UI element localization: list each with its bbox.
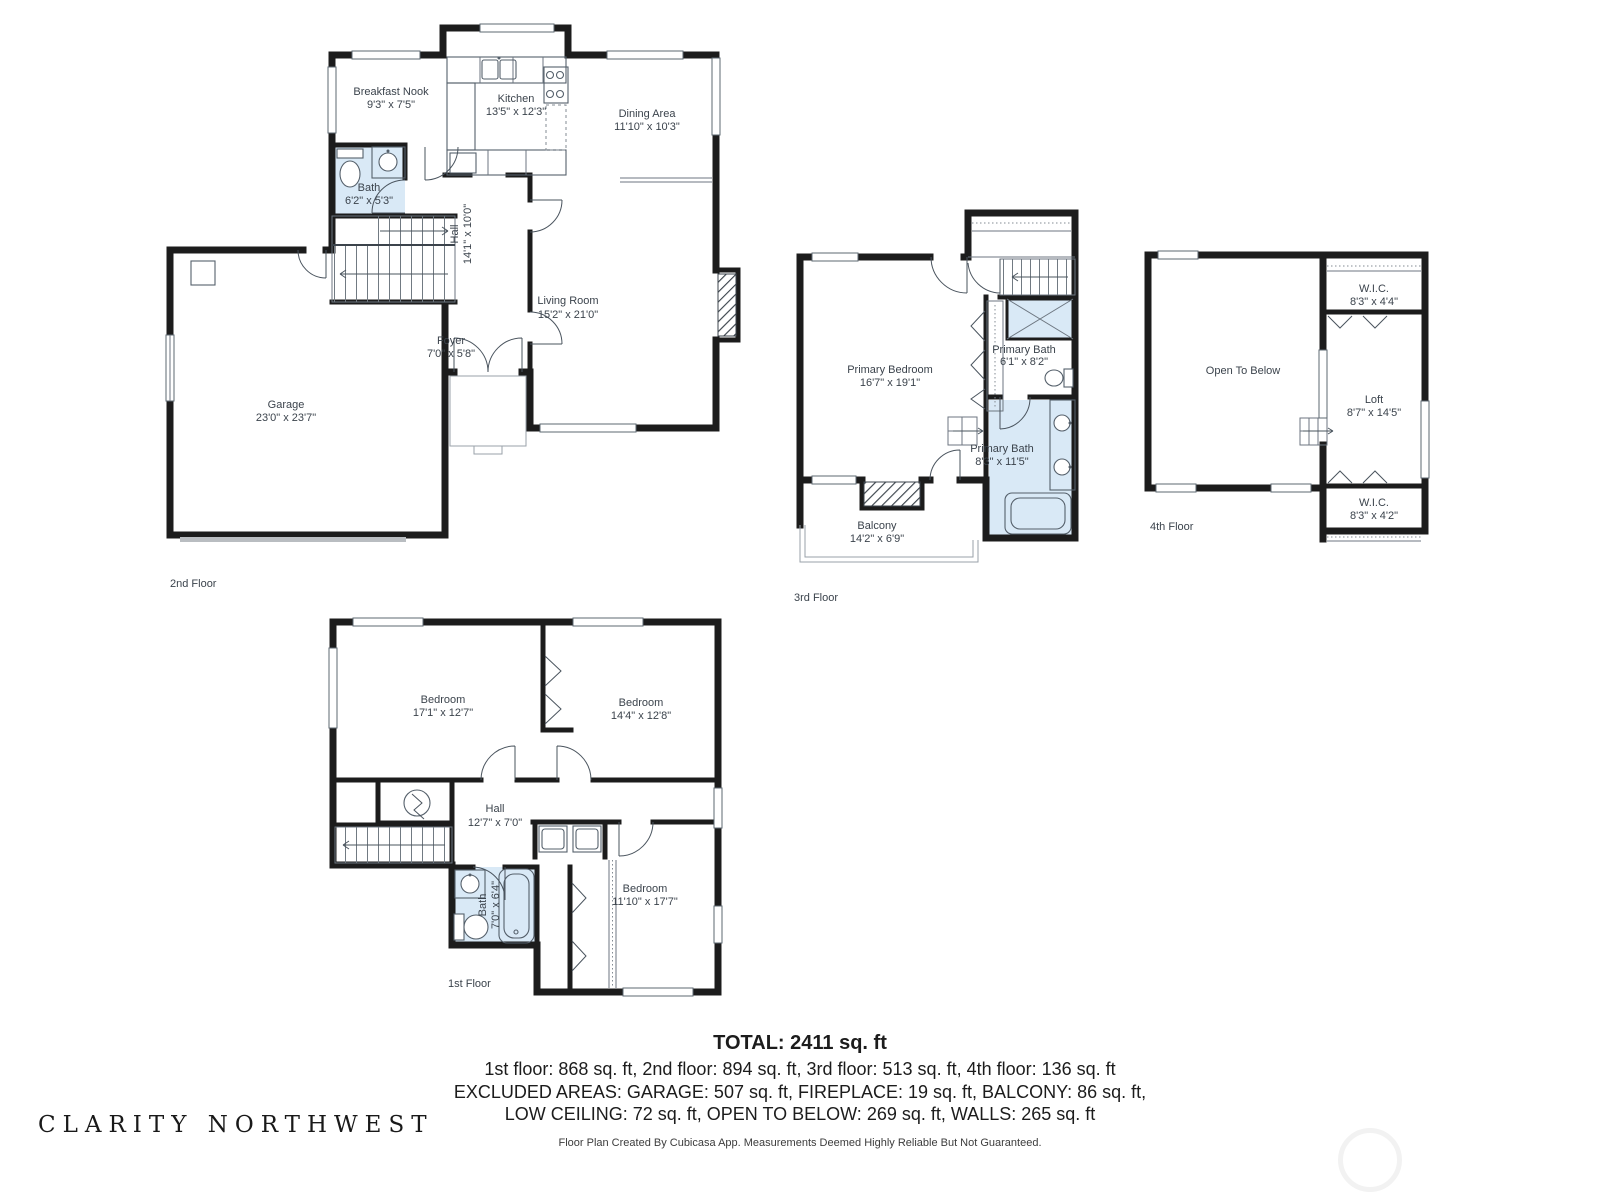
room-dims: 8'3" x 4'2" [1350, 510, 1398, 522]
fireplace [862, 480, 922, 508]
room-name: W.I.C. [1359, 497, 1389, 509]
room-name: Bath [358, 182, 381, 194]
floor-label: 3rd Floor [794, 592, 838, 604]
excluded-areas-line-1: EXCLUDED AREAS: GARAGE: 507 sq. ft, FIRE… [0, 1081, 1600, 1104]
stairs [1300, 418, 1333, 445]
stairs [332, 216, 455, 302]
fireplace [716, 270, 738, 340]
room-name: Foyer [437, 335, 465, 347]
room-name: Living Room [537, 295, 598, 307]
winder-stairs [948, 417, 983, 445]
room-dims: 6'2" x 5'3" [345, 195, 393, 207]
toilet-icon [1045, 369, 1073, 387]
room-name: Open To Below [1206, 365, 1280, 377]
water-heater [191, 261, 215, 285]
brand-logo: CLARITY NORTHWEST [38, 1112, 434, 1138]
room-dims: 14'2" x 6'9" [850, 533, 904, 545]
floor-plan-4th-floor: Open To Below W.I.C. 8'3" x 4'4" Loft 8'… [1123, 243, 1435, 553]
room-name: Dining Area [619, 108, 677, 120]
room-dims: 17'1" x 12'7" [413, 707, 473, 719]
garage-door [180, 537, 406, 542]
wardrobe-track [609, 860, 616, 988]
room-dims: 13'5" x 12'3" [486, 106, 546, 118]
room-name: Balcony [857, 520, 897, 532]
room-dims: 14'4" x 12'8" [611, 710, 671, 722]
room-dims: 16'7" x 19'1" [860, 377, 920, 389]
stove-icon [544, 67, 568, 150]
room-name: Bath [477, 894, 489, 917]
closet-chevrons [545, 656, 586, 971]
room-dims: 14'1" x 10'0" [462, 204, 474, 264]
room-dims: 9'3" x 7'5" [367, 99, 415, 111]
low-ceiling-strip [972, 223, 1071, 231]
floor-label: 2nd Floor [170, 578, 217, 590]
room-dims: 8'3" x 11'5" [975, 456, 1028, 468]
room-dims: 11'10" x 10'3" [614, 121, 680, 133]
stairs [335, 827, 452, 863]
room-name: Bedroom [619, 697, 664, 709]
room-dims: 15'2" x 21'0" [538, 309, 598, 321]
floor-plan-1st-floor: Bedroom 17'1" x 12'7" Bedroom 14'4" x 12… [323, 598, 728, 1003]
room-dims: 7'0" x 5'8" [427, 348, 475, 360]
toilet-icon [454, 914, 488, 940]
electrical-panel-icon [404, 790, 430, 819]
room-dims: 11'10" x 17'7" [612, 896, 678, 908]
room-dims: 12'7" x 7'0" [468, 817, 522, 829]
room-name: Bedroom [421, 694, 466, 706]
room-dims: 23'0" x 23'7" [256, 412, 316, 424]
room-name: Loft [1365, 394, 1383, 406]
floor-areas-line: 1st floor: 868 sq. ft, 2nd floor: 894 sq… [0, 1058, 1600, 1081]
room-name: W.I.C. [1359, 283, 1389, 295]
room-name: Kitchen [498, 93, 535, 105]
closet-chevrons [971, 311, 985, 409]
room-name: Primary Bath [970, 443, 1034, 455]
room-name: Garage [268, 399, 305, 411]
room-name: Bedroom [623, 883, 668, 895]
room-dims: 7'0" x 6'4" [490, 881, 502, 929]
porch [450, 376, 526, 454]
floor-label: 4th Floor [1150, 521, 1194, 533]
washer-dryer-icons [539, 826, 601, 852]
total-area: TOTAL: 2411 sq. ft [0, 1032, 1600, 1055]
floor-label: 1st Floor [448, 978, 491, 990]
room-dims: 6'1" x 8'2" [1000, 356, 1048, 368]
stairs [1000, 259, 1075, 295]
room-name: Hall [449, 225, 461, 244]
floor-plan-3rd-floor: Primary Bedroom 16'7" x 19'1" Primary Ba… [778, 193, 1088, 613]
room-name: Hall [486, 803, 505, 815]
room-name: Primary Bath [992, 344, 1056, 356]
room-dims: 8'3" x 4'4" [1350, 296, 1398, 308]
room-name: Breakfast Nook [353, 86, 429, 98]
room-dims: 8'7" x 14'5" [1347, 407, 1401, 419]
floor-plan-2nd-floor: Breakfast Nook 9'3" x 7'5" Kitchen 13'5"… [158, 10, 743, 595]
watermark-circle [1338, 1128, 1402, 1192]
room-name: Primary Bedroom [847, 364, 933, 376]
floorplan-canvas: Breakfast Nook 9'3" x 7'5" Kitchen 13'5"… [0, 0, 1600, 1200]
